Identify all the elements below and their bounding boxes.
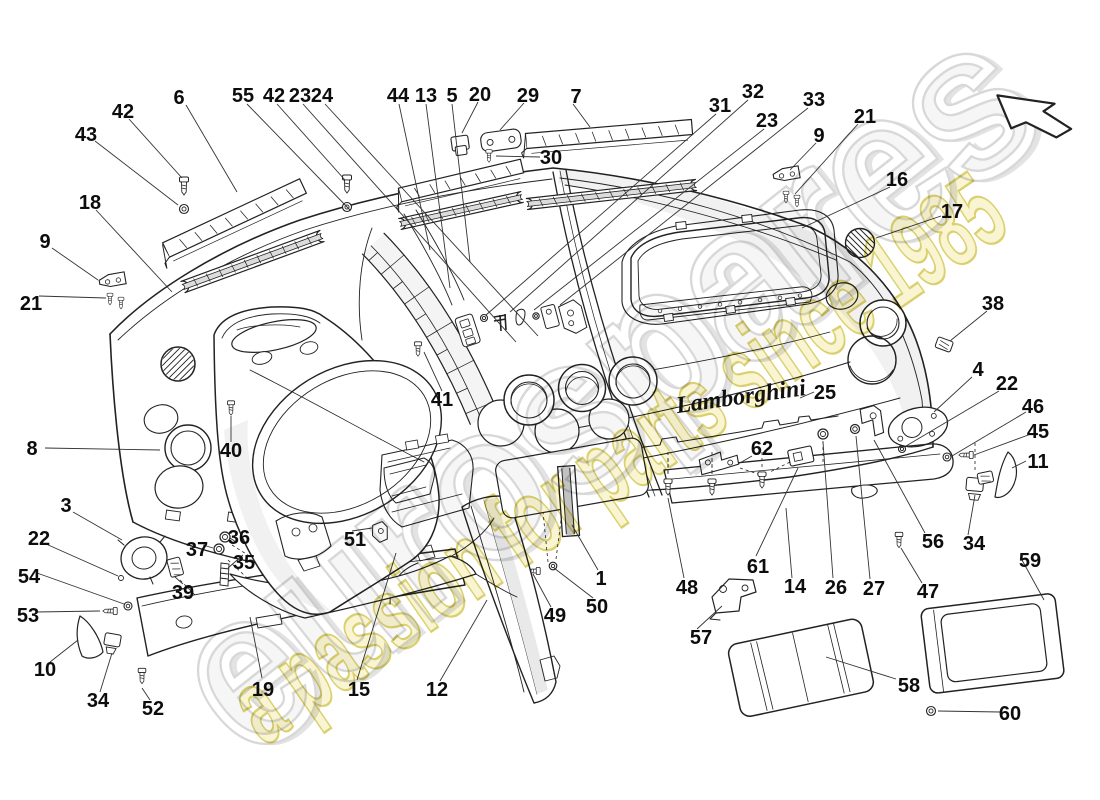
svg-text:34: 34 xyxy=(87,690,110,712)
svg-text:53: 53 xyxy=(17,605,39,627)
svg-text:21: 21 xyxy=(854,106,876,128)
svg-text:3: 3 xyxy=(60,495,71,517)
svg-text:23: 23 xyxy=(756,110,778,132)
svg-text:17: 17 xyxy=(941,201,963,223)
svg-text:44: 44 xyxy=(387,85,410,107)
svg-text:51: 51 xyxy=(344,529,366,551)
svg-text:45: 45 xyxy=(1027,421,1049,443)
svg-text:6: 6 xyxy=(173,87,184,109)
svg-text:34: 34 xyxy=(963,533,986,555)
svg-text:42: 42 xyxy=(112,101,134,123)
svg-text:47: 47 xyxy=(917,581,939,603)
svg-text:46: 46 xyxy=(1022,396,1044,418)
svg-text:55: 55 xyxy=(232,85,254,107)
svg-text:10: 10 xyxy=(34,659,56,681)
svg-text:13: 13 xyxy=(415,85,437,107)
svg-text:30: 30 xyxy=(540,147,562,169)
svg-text:9: 9 xyxy=(813,125,824,147)
svg-text:40: 40 xyxy=(220,440,242,462)
svg-text:22: 22 xyxy=(996,373,1018,395)
svg-text:23: 23 xyxy=(289,85,311,107)
svg-text:8: 8 xyxy=(26,438,37,460)
svg-text:52: 52 xyxy=(142,698,164,720)
svg-text:56: 56 xyxy=(922,531,944,553)
svg-text:21: 21 xyxy=(20,293,42,315)
svg-text:41: 41 xyxy=(431,389,453,411)
svg-text:12: 12 xyxy=(426,679,448,701)
svg-text:26: 26 xyxy=(825,577,847,599)
svg-text:24: 24 xyxy=(311,85,334,107)
svg-text:38: 38 xyxy=(982,293,1004,315)
svg-text:25: 25 xyxy=(814,382,836,404)
svg-text:27: 27 xyxy=(863,578,885,600)
svg-text:58: 58 xyxy=(898,675,920,697)
svg-text:57: 57 xyxy=(690,627,712,649)
svg-text:11: 11 xyxy=(1027,451,1048,473)
svg-text:39: 39 xyxy=(172,582,194,604)
svg-text:48: 48 xyxy=(676,577,698,599)
svg-text:16: 16 xyxy=(886,169,908,191)
svg-text:9: 9 xyxy=(39,231,50,253)
svg-text:43: 43 xyxy=(75,124,97,146)
svg-text:59: 59 xyxy=(1019,550,1041,572)
svg-text:49: 49 xyxy=(544,605,566,627)
svg-text:60: 60 xyxy=(999,703,1021,725)
svg-text:36: 36 xyxy=(228,527,250,549)
svg-text:50: 50 xyxy=(586,596,608,618)
svg-text:33: 33 xyxy=(803,89,825,111)
svg-text:35: 35 xyxy=(233,552,255,574)
svg-text:15: 15 xyxy=(348,679,370,701)
svg-text:4: 4 xyxy=(972,359,984,381)
svg-text:62: 62 xyxy=(751,438,773,460)
svg-text:20: 20 xyxy=(469,84,491,106)
svg-text:42: 42 xyxy=(263,85,285,107)
svg-text:7: 7 xyxy=(570,86,581,108)
svg-text:19: 19 xyxy=(252,679,274,701)
svg-text:32: 32 xyxy=(742,81,764,103)
svg-text:54: 54 xyxy=(18,566,41,588)
svg-text:22: 22 xyxy=(28,528,50,550)
svg-text:29: 29 xyxy=(517,85,539,107)
svg-text:31: 31 xyxy=(709,95,731,117)
svg-text:14: 14 xyxy=(784,576,807,598)
svg-text:5: 5 xyxy=(446,85,457,107)
svg-text:1: 1 xyxy=(595,568,606,590)
svg-text:18: 18 xyxy=(79,192,101,214)
svg-text:37: 37 xyxy=(186,539,208,561)
svg-text:61: 61 xyxy=(747,556,769,578)
